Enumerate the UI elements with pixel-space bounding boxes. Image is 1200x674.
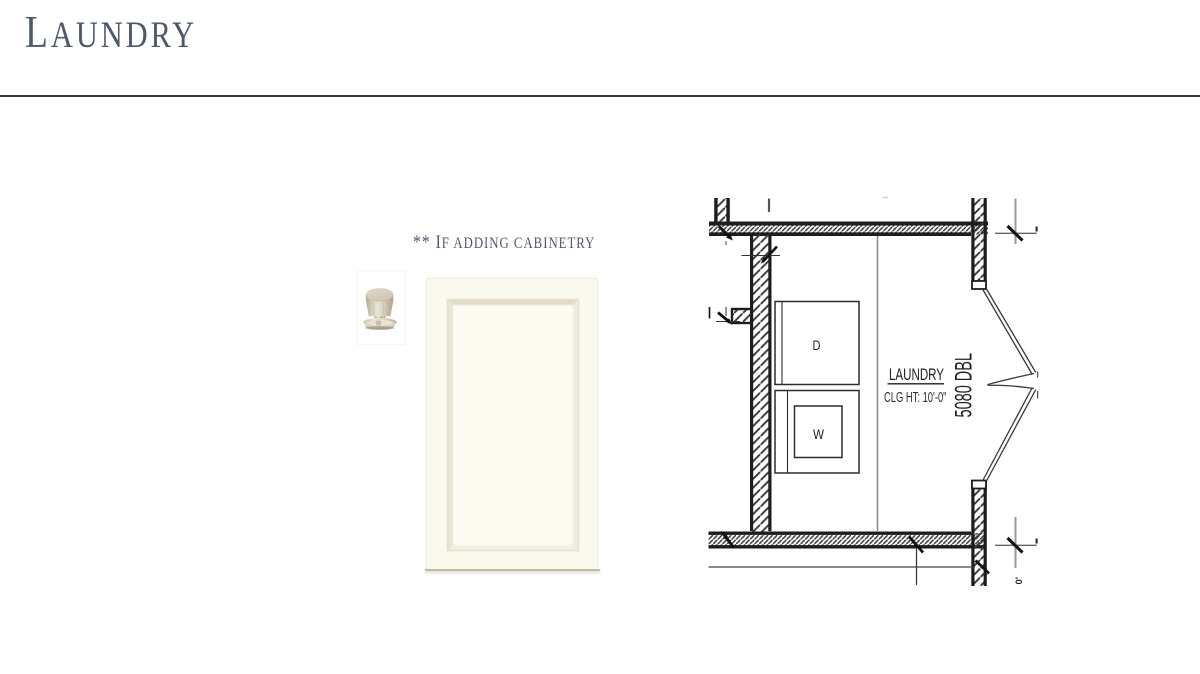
svg-text:0': 0' [1014, 577, 1025, 585]
svg-text:W: W [813, 427, 824, 442]
svg-text:D: D [813, 338, 821, 353]
svg-text:LAUNDRY: LAUNDRY [889, 366, 944, 384]
svg-text:5080 DBL: 5080 DBL [951, 353, 978, 418]
svg-text:CLG HT: 10'-0": CLG HT: 10'-0" [884, 390, 947, 406]
